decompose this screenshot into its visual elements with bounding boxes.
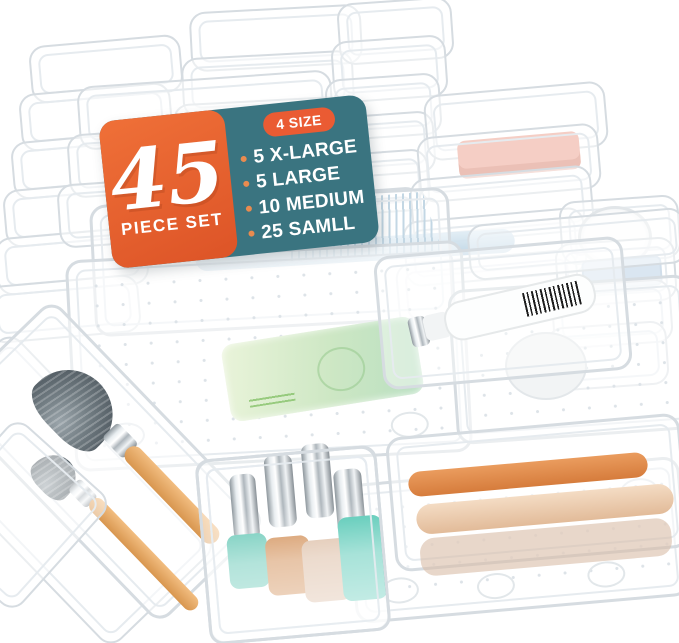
badge-teal-panel: 4 SIZE 5 X-LARGE 5 LARGE 10 MEDIUM 25 SA…: [223, 94, 380, 256]
product-photo-organizer-set: 45 PIECE SET 4 SIZE 5 X-LARGE 5 LARGE 10…: [0, 0, 679, 643]
size-list: 5 X-LARGE 5 LARGE 10 MEDIUM 25 SAMLL: [239, 133, 373, 246]
tube-barcode: [522, 281, 582, 317]
piece-count: 45: [107, 137, 228, 218]
size-pill: 4 SIZE: [262, 106, 336, 137]
badge-orange-panel: 45 PIECE SET: [98, 109, 239, 269]
badge-card: 45 PIECE SET 4 SIZE 5 X-LARGE 5 LARGE 10…: [98, 94, 380, 269]
bin-front-wall: [194, 444, 392, 643]
